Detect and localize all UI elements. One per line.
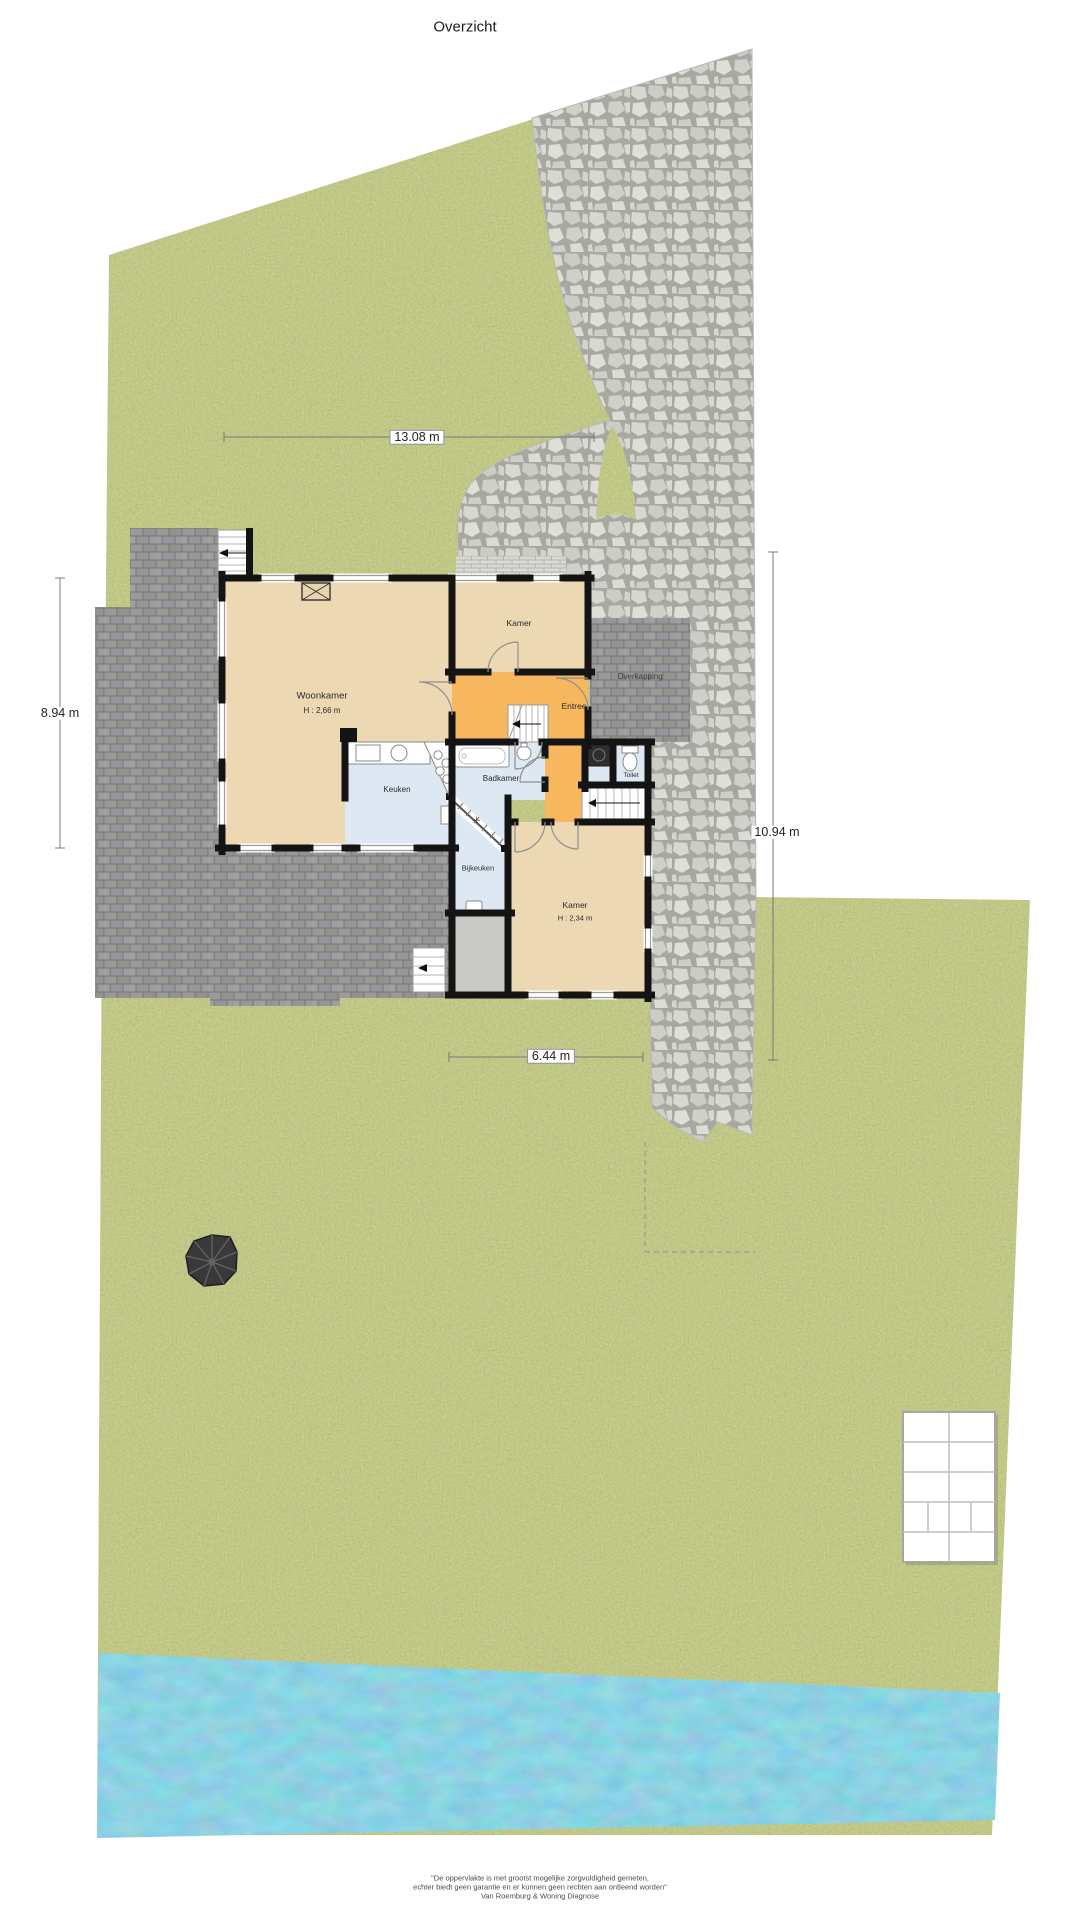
greenhouse-grid bbox=[903, 1412, 998, 1565]
footer-disclaimer-line1: "De oppervlakte is met grootst mogelijke… bbox=[431, 1874, 649, 1882]
room-label-kamer-achter: Kamer bbox=[562, 901, 587, 910]
room-label-keuken: Keuken bbox=[383, 786, 410, 794]
stove-burner bbox=[434, 751, 442, 759]
room-height-kamer-achter: H : 2,34 m bbox=[558, 914, 593, 922]
floorplan-scene bbox=[0, 0, 1080, 1920]
kitchen-sink bbox=[356, 745, 380, 761]
stove-burner bbox=[436, 767, 444, 775]
room-label-entree: Entree bbox=[561, 702, 586, 711]
room-label-badkamer: Badkamer bbox=[483, 775, 519, 783]
toilet-tank bbox=[622, 746, 638, 753]
kitchen-basin bbox=[391, 745, 407, 761]
wall-stub bbox=[340, 728, 357, 742]
footer-disclaimer-line2: echter biedt geen garantie en er kunnen … bbox=[413, 1883, 667, 1891]
floor-bijkeuken bbox=[452, 798, 508, 913]
fireplace bbox=[302, 583, 330, 600]
floor-berging bbox=[452, 913, 508, 995]
tree-marker bbox=[186, 1235, 237, 1286]
stairs-achter bbox=[582, 785, 648, 822]
dimension-right: 10.94 m bbox=[751, 826, 802, 839]
dimension-top: 13.08 m bbox=[389, 430, 444, 445]
floorplan-page: Overzicht 13.08 m 8.94 m 10.94 m 6.44 m … bbox=[0, 0, 1080, 1920]
washbasin bbox=[517, 746, 531, 760]
footer-company: Van Roemburg & Woning Diagnose bbox=[481, 1892, 599, 1900]
room-label-woonkamer: Woonkamer bbox=[296, 691, 347, 701]
page-title: Overzicht bbox=[433, 20, 496, 35]
room-height-woonkamer: H : 2,66 m bbox=[304, 707, 341, 715]
stair-side-wall bbox=[246, 528, 253, 578]
stairs-entree bbox=[508, 705, 548, 742]
toilet-bowl bbox=[623, 753, 637, 771]
area-label-overkapping: Overkapping bbox=[617, 673, 662, 681]
dimension-bottom: 6.44 m bbox=[527, 1049, 575, 1064]
dimension-left: 8.94 m bbox=[38, 707, 82, 720]
washbasin-tap bbox=[521, 743, 527, 747]
room-label-toilet: Toilet bbox=[623, 773, 638, 780]
bathtub-drain bbox=[462, 754, 466, 758]
room-label-bijkeuken: Bijkeuken bbox=[462, 864, 495, 872]
stairs-terras bbox=[413, 948, 445, 992]
room-label-kamer-boven: Kamer bbox=[506, 619, 531, 628]
